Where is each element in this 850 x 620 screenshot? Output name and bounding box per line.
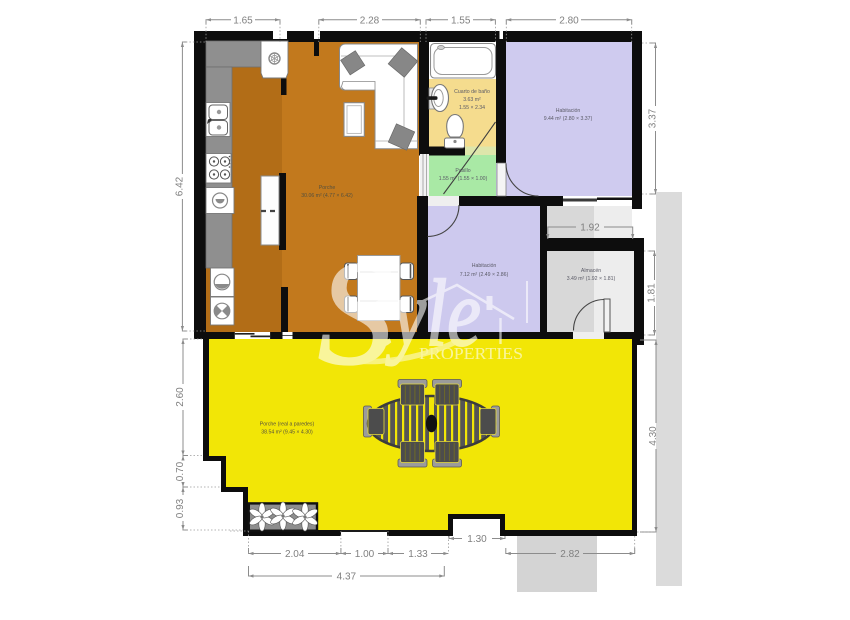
- svg-text:38.54 m² (9.45 × 4.30): 38.54 m² (9.45 × 4.30): [261, 430, 313, 436]
- svg-text:4.37: 4.37: [337, 572, 357, 583]
- svg-text:0.70: 0.70: [175, 461, 186, 481]
- svg-text:1.33: 1.33: [408, 549, 428, 560]
- svg-text:1.55 × 2.34: 1.55 × 2.34: [459, 105, 485, 111]
- svg-text:Cuarto de baño: Cuarto de baño: [454, 89, 490, 95]
- svg-text:9.44 m² (2.80 × 3.37): 9.44 m² (2.80 × 3.37): [544, 116, 593, 122]
- svg-text:1.55 m² (1.55 × 1.00): 1.55 m² (1.55 × 1.00): [439, 176, 488, 182]
- svg-text:Porche: Porche: [319, 185, 336, 191]
- svg-text:1.30: 1.30: [467, 534, 487, 545]
- svg-text:1.65: 1.65: [233, 15, 253, 26]
- svg-text:1.92: 1.92: [580, 223, 600, 234]
- svg-text:3.63 m²: 3.63 m²: [463, 97, 481, 103]
- svg-text:0.93: 0.93: [175, 498, 186, 518]
- svg-text:4.30: 4.30: [648, 426, 659, 446]
- svg-text:1.55: 1.55: [451, 15, 471, 26]
- svg-text:Porche (real a paredes): Porche (real a paredes): [260, 422, 315, 428]
- svg-text:Almacén: Almacén: [581, 268, 601, 274]
- svg-text:2.80: 2.80: [559, 15, 579, 26]
- svg-text:30.06 m² (4.77 × 6.42): 30.06 m² (4.77 × 6.42): [301, 193, 353, 199]
- svg-text:3.49 m² (1.92 × 1.81): 3.49 m² (1.92 × 1.81): [567, 276, 616, 282]
- svg-text:Habitación: Habitación: [556, 108, 581, 114]
- svg-text:1.00: 1.00: [355, 549, 375, 560]
- svg-text:6.42: 6.42: [174, 176, 185, 196]
- svg-text:1.81: 1.81: [647, 283, 658, 303]
- svg-text:2.82: 2.82: [560, 549, 580, 560]
- svg-text:Pasillo: Pasillo: [455, 168, 470, 174]
- svg-text:3.37: 3.37: [648, 108, 659, 128]
- svg-text:2.28: 2.28: [360, 15, 380, 26]
- svg-text:PROPERTIES: PROPERTIES: [419, 344, 523, 363]
- svg-text:2.04: 2.04: [285, 549, 305, 560]
- svg-text:2.60: 2.60: [175, 387, 186, 407]
